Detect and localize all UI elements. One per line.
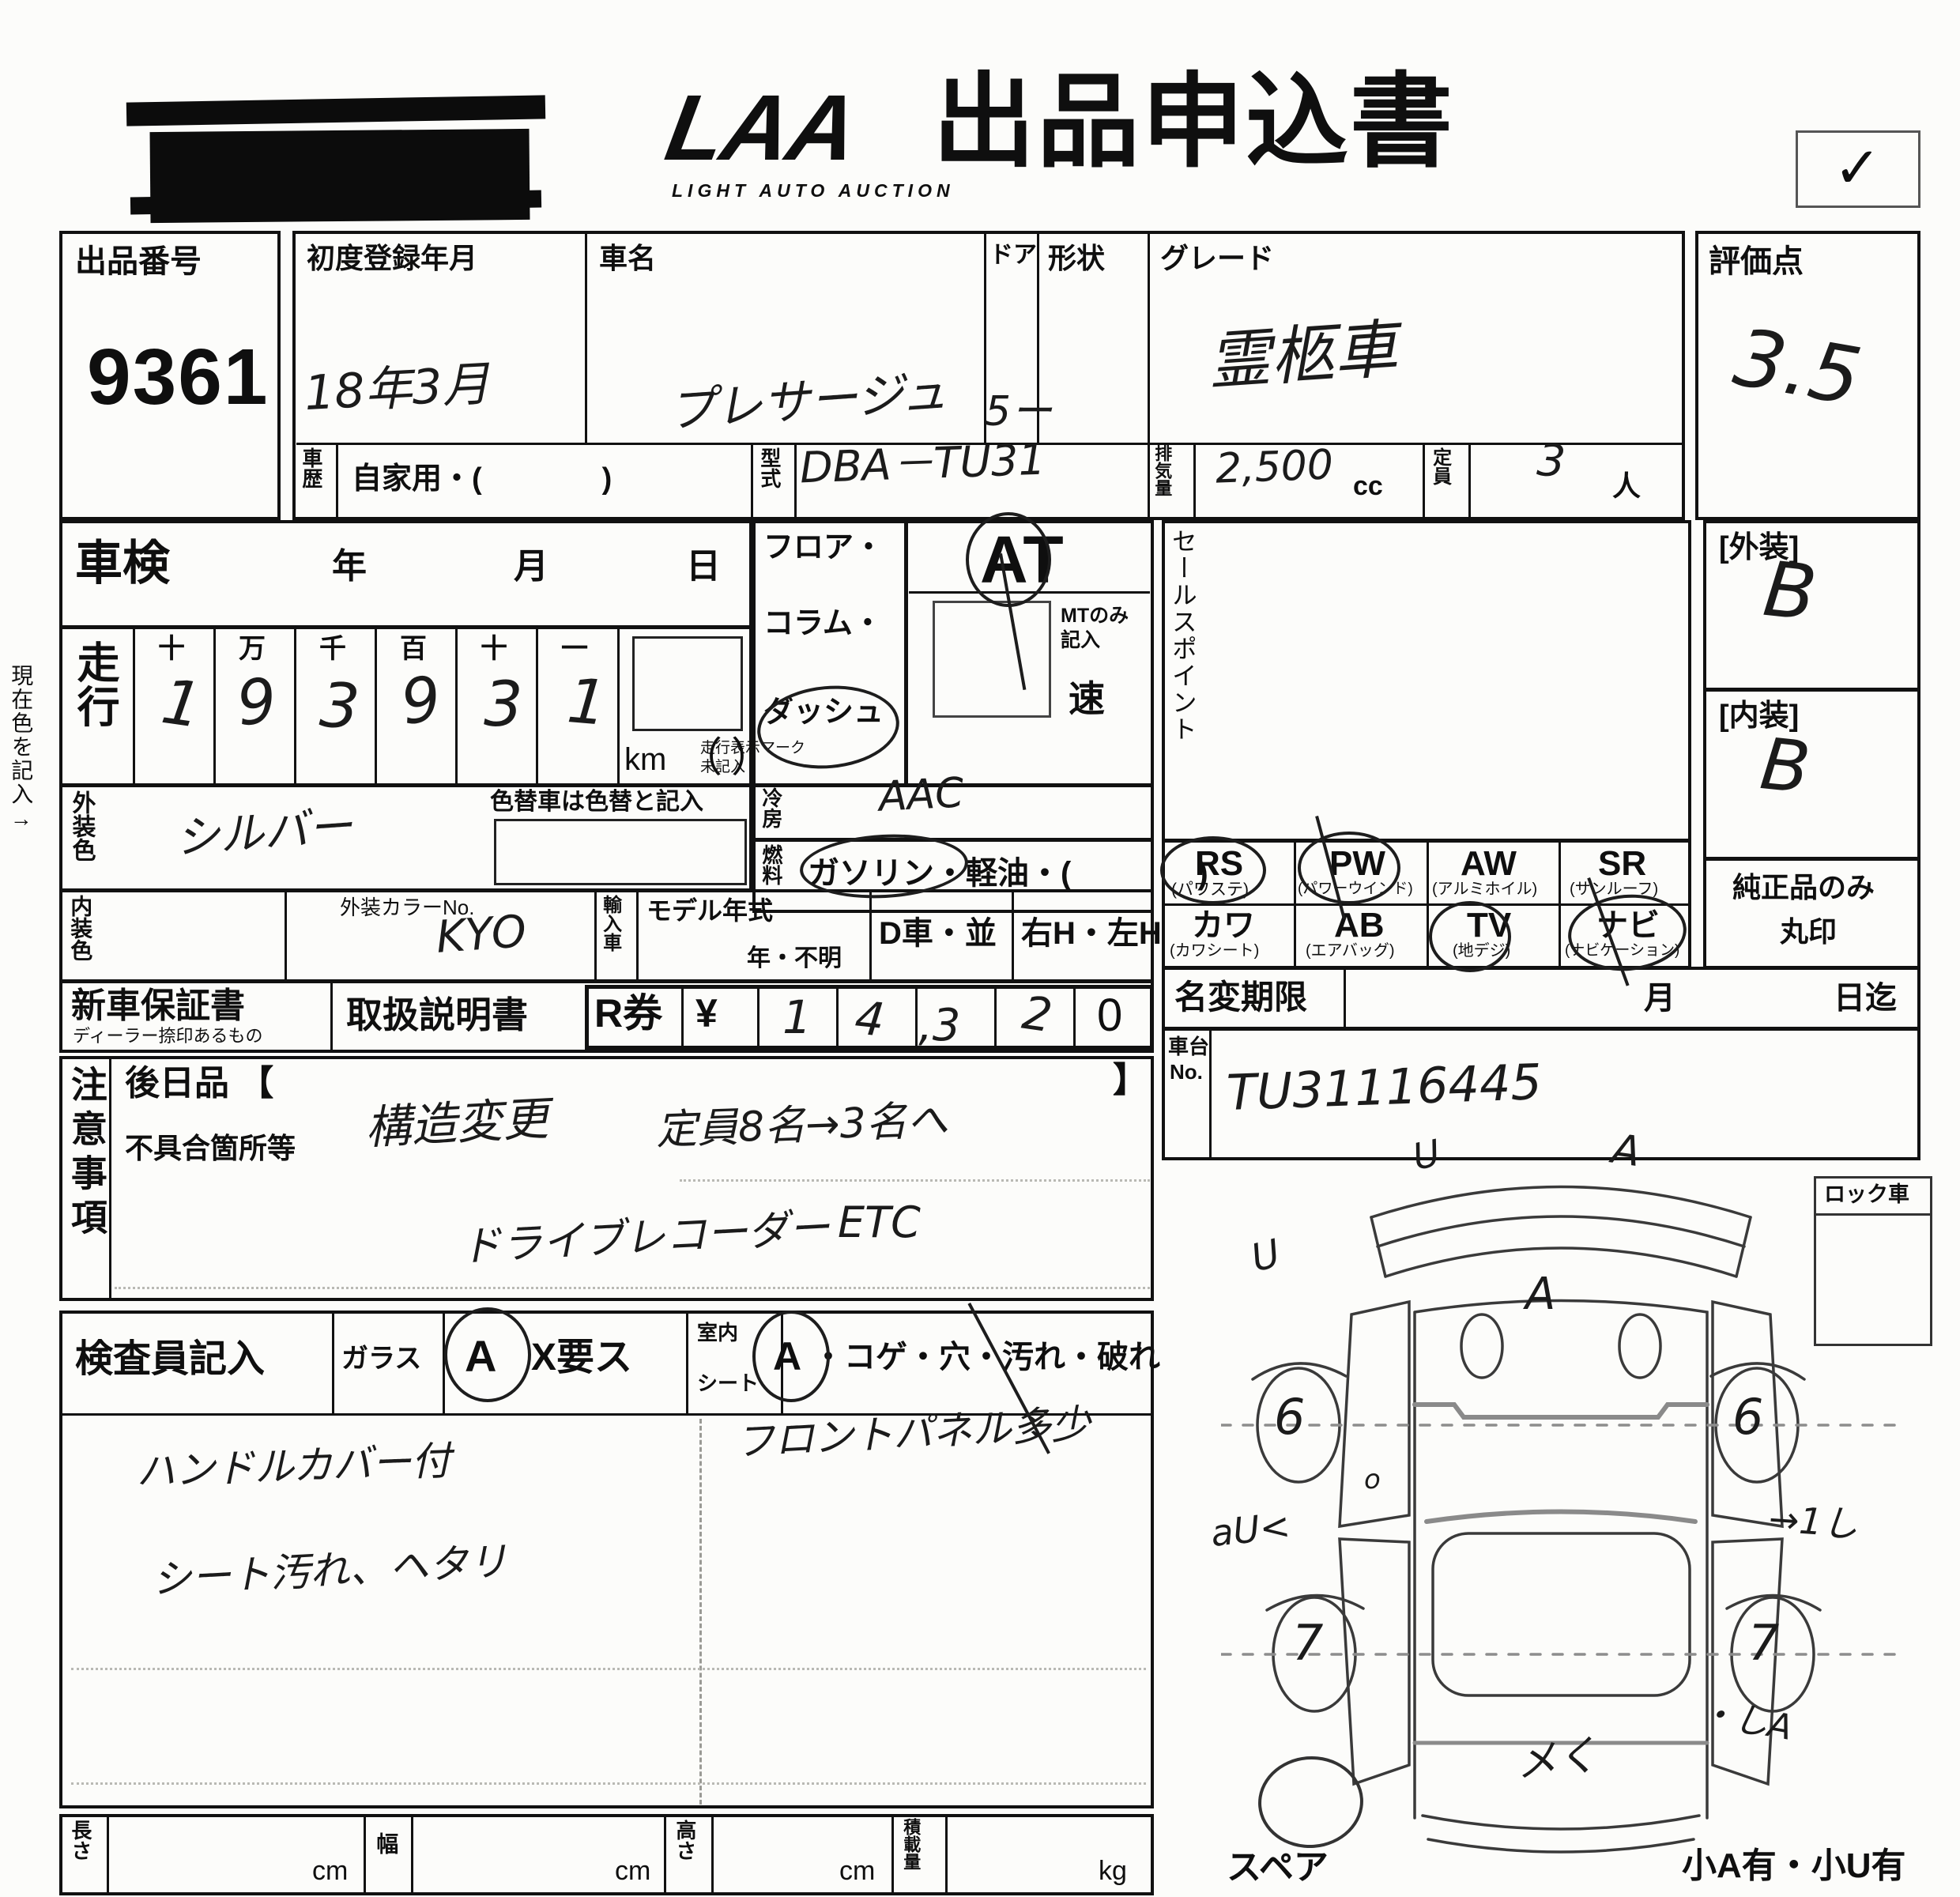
equipment-code: ナビ [1596, 907, 1660, 944]
mt-note-line2: 記入 [1061, 629, 1100, 652]
r-ticket-label: R券 [594, 991, 662, 1037]
equipment-code: SR [1598, 844, 1646, 884]
capacity-label: 定員 [1429, 447, 1451, 485]
later-items-close: 】 [1113, 1061, 1148, 1101]
speed-label: 速 [1069, 678, 1105, 720]
r-ticket-box [585, 985, 1154, 1050]
interior-grade-label: [内装] [1719, 700, 1799, 734]
cooling-box [752, 784, 1154, 841]
shift-floor-label: フロア・ [763, 531, 884, 566]
fuel-options: ガソリン・軽油・( ) [808, 855, 1208, 892]
glass-label: ガラス [341, 1344, 421, 1375]
odometer-col-header: 十 [158, 634, 185, 665]
equipment-sub: (エアバッグ) [1306, 942, 1395, 960]
equipment-code: AB [1334, 906, 1385, 946]
equipment-sub: (アルミホイル) [1432, 881, 1537, 899]
warranty-label: 新車保証書 [71, 986, 245, 1027]
shaken-day-label: 日 [686, 547, 721, 587]
width-unit: cm [615, 1856, 650, 1887]
inspector-label: 検査員記入 [75, 1337, 265, 1381]
equipment-sub: (カワシート) [1170, 942, 1259, 960]
interior-color-label: 内装色 [67, 895, 92, 961]
page-title: 出品申込書 [933, 63, 1454, 182]
equipment-code: PW [1329, 844, 1385, 884]
seat-label-line1: 室内 [697, 1322, 738, 1345]
seat-options: ・コゲ・穴・汚れ・破れ [812, 1339, 1160, 1375]
genuine-parts-label-2: 丸印 [1780, 915, 1837, 948]
yen-symbol: ¥ [695, 991, 718, 1037]
transfer-deadline-label: 名変期限 [1174, 979, 1307, 1016]
transmission-at-label: AT [980, 522, 1064, 598]
car-diagram [1221, 1142, 1901, 1861]
length-unit: cm [312, 1856, 348, 1887]
chassis-label-2: No. [1170, 1061, 1203, 1084]
auction-application-sheet: LAA LIGHT AUTO AUCTION 出品申込書 ✓ 出品番号 9361… [0, 0, 1960, 1897]
equipment-code: RS [1195, 844, 1243, 884]
equipment-code: カワ [1192, 907, 1255, 944]
fuel-label: 燃料 [759, 844, 782, 885]
chassis-number-box [1162, 1028, 1920, 1160]
exterior-color-no-label: 外装カラーNo. [340, 896, 474, 920]
warranty-sub-label: ディーラー捺印あるもの [73, 1026, 262, 1046]
margin-note: 現在色を記入→ [8, 664, 33, 832]
small-scratch-note: 小A有・小U有 [1682, 1846, 1906, 1887]
chassis-label-1: 車台 [1168, 1035, 1209, 1059]
import-car-label: 輸入車 [599, 895, 621, 952]
door-label: ドア [989, 242, 1037, 270]
height-unit: cm [839, 1856, 875, 1887]
year-unknown-label: 年・不明 [747, 945, 842, 973]
measurements-box [59, 1814, 1154, 1895]
model-code-label: 型式 [757, 447, 781, 488]
odometer-label: 走行 [70, 640, 119, 729]
car-name-label: 車名 [599, 242, 656, 274]
sales-point-label: セールスポイント [1168, 528, 1197, 743]
odometer-unit: km [624, 741, 666, 778]
equipment-sub: (ナビゲーション) [1565, 942, 1679, 960]
equipment-code: TV [1467, 906, 1511, 946]
seat-option-a: A [773, 1334, 801, 1380]
history-label: 車歴 [299, 447, 322, 488]
height-label: 高さ [673, 1820, 696, 1861]
recolor-note: 色替車は色替と記入 [490, 789, 703, 817]
history-value: 自家用・( ) [352, 462, 612, 497]
glass-option-x: X要ス [531, 1336, 632, 1379]
length-label: 長さ [68, 1820, 92, 1861]
shaken-year-label: 年 [332, 547, 367, 587]
capacity-unit: 人 [1612, 470, 1641, 502]
redacted-stamp [126, 95, 545, 126]
r-ticket-zero: 0 [1097, 990, 1122, 1043]
shaken-month-label: 月 [514, 547, 548, 587]
first-registration-label: 初度登録年月 [307, 242, 477, 274]
mt-entry-box [933, 601, 1051, 718]
odometer-col-header: 百 [400, 634, 427, 665]
equipment-sub: (地デジ) [1453, 942, 1510, 960]
handle-side-label: 右H・左H [1021, 915, 1162, 952]
mt-note-line1: MTのみ [1061, 605, 1129, 628]
lot-number-value: 9361 [87, 332, 269, 423]
laa-logo-subtitle: LIGHT AUTO AUCTION [672, 180, 955, 201]
odometer-col-header: 万 [239, 634, 266, 665]
exterior-grade-label: [外装] [1719, 531, 1799, 566]
exterior-color-label: 外装色 [67, 790, 95, 862]
laa-logo: LAA [658, 75, 864, 183]
displacement-unit: cc [1353, 471, 1383, 502]
defect-label: 不具合箇所等 [125, 1132, 296, 1164]
width-label: 幅 [373, 1832, 398, 1854]
score-label: 評価点 [1709, 243, 1804, 280]
equipment-sub: (サンルーフ) [1570, 881, 1658, 899]
manual-label: 取扱説明書 [346, 994, 528, 1036]
odometer-col-header: 十 [481, 634, 507, 665]
spare-label: スペア [1227, 1848, 1329, 1888]
grade-label: グレード [1160, 242, 1274, 274]
cooling-label: 冷房 [759, 787, 782, 828]
sales-point-box [1162, 520, 1691, 842]
odometer-col-header: 一 [561, 634, 588, 665]
load-label: 積載量 [901, 1818, 921, 1870]
checkmark-icon: ✓ [1834, 136, 1881, 202]
transfer-month-label: 月 [1644, 980, 1675, 1016]
notes-side-label: 注意事項 [66, 1065, 107, 1243]
lot-number-label: 出品番号 [75, 243, 202, 280]
equipment-sub: (パワステ) [1171, 881, 1249, 899]
glass-option-a: A [465, 1331, 496, 1382]
recolor-box [494, 819, 747, 885]
dealer-car-label: D車・並 [879, 915, 997, 952]
inspector-box [59, 1311, 1154, 1808]
equipment-code: AW [1461, 844, 1517, 884]
genuine-parts-label-1: 純正品のみ [1732, 871, 1875, 903]
transfer-day-label: 日迄 [1834, 980, 1897, 1016]
displacement-label: 排気量 [1152, 444, 1172, 496]
shape-label: 形状 [1048, 242, 1105, 274]
mileage-mark-box [632, 636, 743, 731]
later-items-label: 後日品 【 [125, 1064, 273, 1104]
load-unit: kg [1099, 1856, 1127, 1887]
equipment-sub: (パワーウインド) [1298, 881, 1413, 898]
shaken-label: 車検 [75, 536, 170, 590]
shift-column-label: コラム・ [763, 607, 883, 642]
model-year-label: モデル年式 [646, 896, 773, 926]
shift-dash-label: ダッシュ [763, 696, 884, 730]
seat-label-line2: シート [697, 1372, 759, 1396]
odometer-col-header: 千 [319, 634, 346, 665]
